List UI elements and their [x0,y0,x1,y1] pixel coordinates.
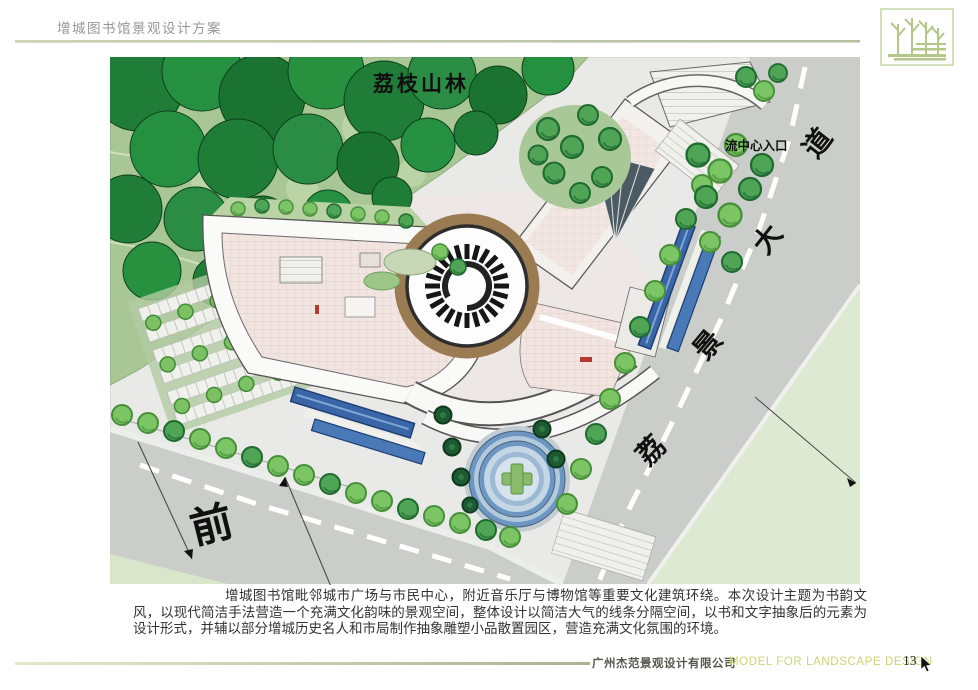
site-plan-svg: 荔枝山林 流中心入口 道 大 景 荔 前 [110,57,860,585]
central-circle-plaza [401,220,533,352]
design-description: 增城图书馆毗邻城市广场与市民中心，附近音乐厅与博物馆等重要文化建筑环绕。本次设计… [133,588,867,638]
entrance-label: 流中心入口 [725,138,788,153]
footer-company: 广州杰范景观设计有限公司 [592,655,736,671]
page-title: 增城图书馆景观设计方案 [57,17,222,37]
forest-label: 荔枝山林 [373,72,469,96]
cursor-pointer-icon [920,656,932,678]
presentation-page: 增城图书馆景观设计方案 [0,0,978,690]
trees-logo-icon [882,10,952,64]
footer-divider [15,662,590,665]
site-plan-image: 荔枝山林 流中心入口 道 大 景 荔 前 [110,57,860,585]
header-divider [15,40,860,42]
circular-fountain [464,426,570,532]
page-number: 13 [903,653,917,669]
company-logo [880,8,954,66]
